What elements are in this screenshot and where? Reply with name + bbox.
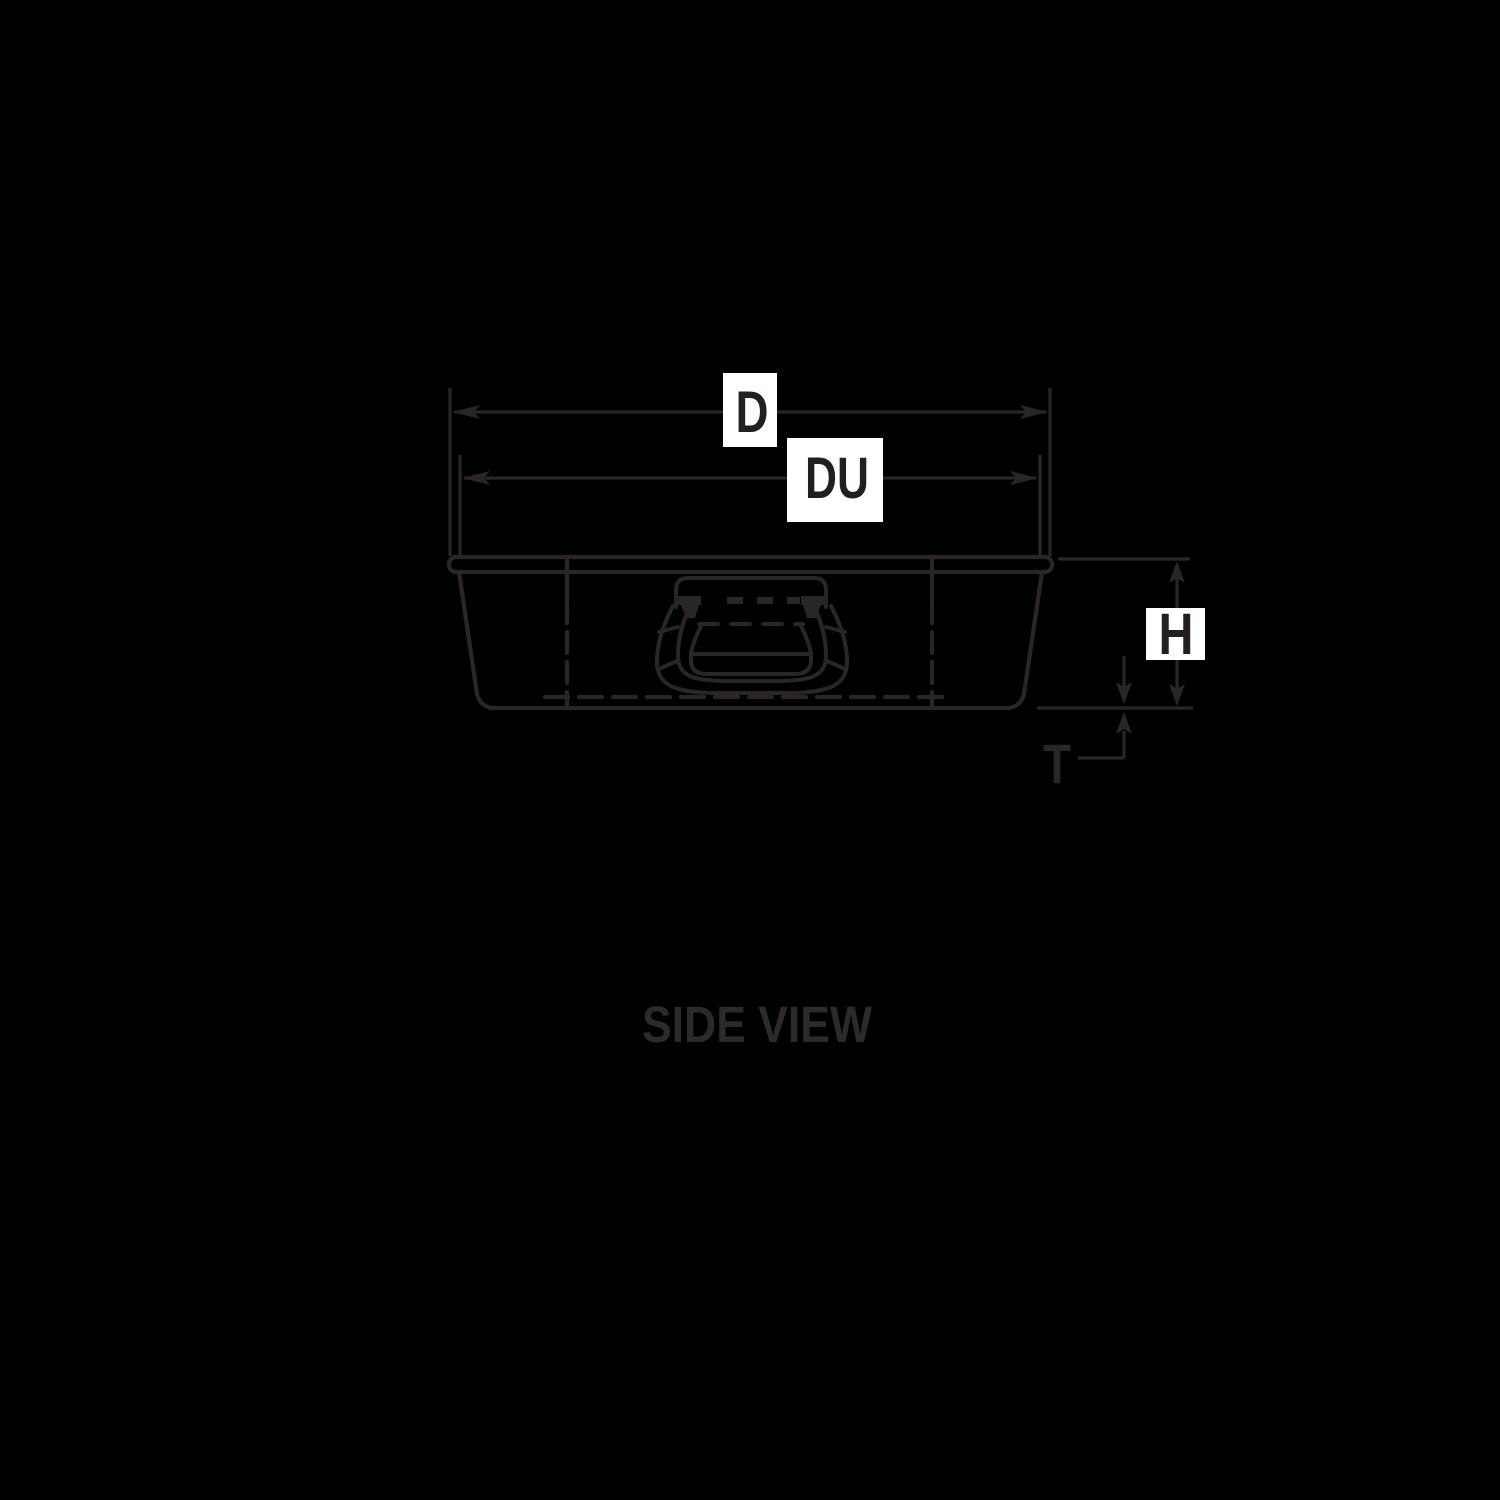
- handle-wire-tick-right-lower: [827, 661, 845, 669]
- handle-wire-tick-left-lower: [659, 661, 677, 669]
- container-rim: [449, 557, 1052, 572]
- handle: [657, 578, 847, 693]
- handle-tab-bar-right: [801, 596, 826, 605]
- handle-plate-right-edge: [801, 626, 811, 654]
- h-label: H: [1159, 602, 1194, 667]
- container-right-wall: [1009, 572, 1042, 708]
- handle-tab-dash-2: [757, 597, 773, 604]
- handle-bail-inner: [678, 606, 826, 681]
- handle-plate-band: [691, 654, 811, 674]
- handle-plate-left-edge: [691, 626, 701, 654]
- container-left-wall: [459, 572, 492, 708]
- t-arrowhead-up: [1116, 712, 1132, 734]
- handle-tab-dash-3: [787, 597, 800, 604]
- t-label: T: [1043, 732, 1071, 795]
- du-label: DU: [805, 446, 869, 511]
- side-view-technical-drawing: D DU H T SIDE VIEW: [0, 0, 1500, 1500]
- view-caption: SIDE VIEW: [642, 996, 873, 1053]
- handle-tab-bar-left: [676, 596, 701, 605]
- dimension-du: [460, 455, 1040, 556]
- handle-tab-dash-1: [727, 597, 743, 604]
- diagram-canvas: D DU H T SIDE VIEW: [0, 0, 1500, 1500]
- d-label: D: [736, 380, 769, 445]
